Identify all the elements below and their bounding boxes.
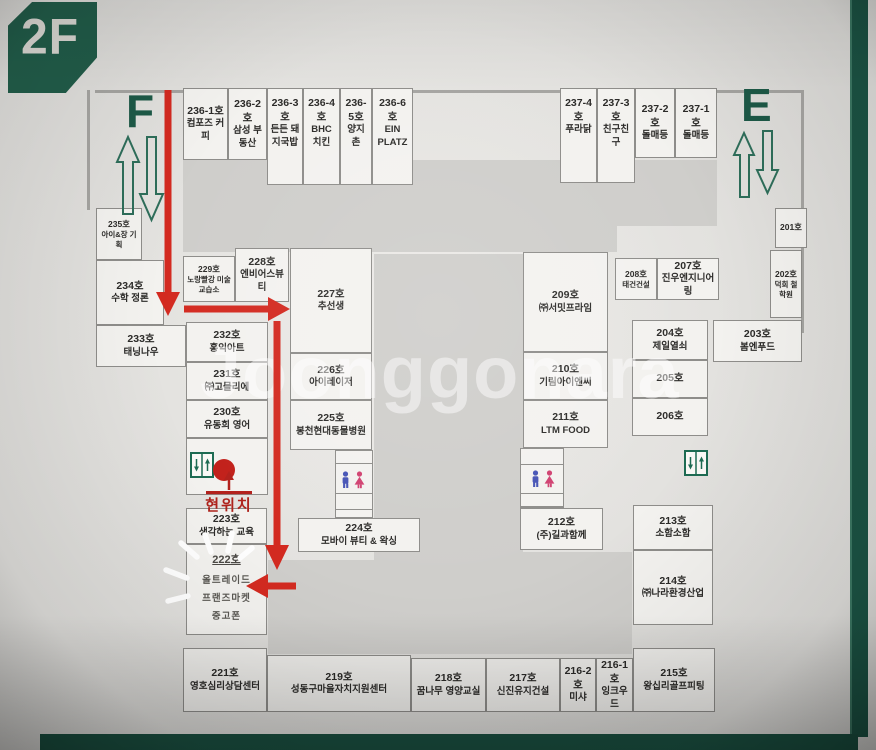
room-number: 233호 (127, 333, 154, 347)
room-name: 홍익아트 (210, 343, 245, 355)
room-number: 236-3호 (270, 97, 300, 124)
room-name: LTM FOOD (541, 425, 590, 437)
room-204호: 204호제일열쇠 (632, 320, 708, 360)
room-number: 202호 (775, 269, 797, 280)
room-219호: 219호성동구마을자치지원센터 (267, 655, 411, 712)
room-name: 양지촌 (343, 124, 369, 149)
room-203호: 203호봄엔푸드 (713, 320, 802, 362)
room-name: 엔비어스뷰티 (238, 269, 286, 294)
room-name: 유동희 영어 (204, 420, 250, 432)
room-number: 237-3호 (600, 97, 632, 124)
room-228호: 228호엔비어스뷰티 (235, 248, 289, 302)
room-number: 215호 (660, 667, 687, 681)
room-211호: 211호LTM FOOD (523, 400, 608, 448)
corridor-tick (521, 464, 563, 465)
room-210호: 210호기림아이엔씨 (523, 352, 608, 400)
room-number: 236-4호 (306, 97, 337, 124)
corridor-tick (521, 493, 563, 494)
room-number: 222호 (212, 553, 240, 567)
sign-frame-bottom (40, 734, 858, 750)
restroom-icon (529, 470, 557, 488)
room-name: 노랑빨강 미술교습소 (186, 275, 232, 295)
room-name: 푸라닭 (565, 124, 591, 136)
room-name: ㈜나라환경산업 (642, 588, 704, 600)
room-214호: 214호㈜나라환경산업 (633, 550, 713, 625)
room-name: 친구친구 (600, 124, 632, 149)
elevator-icon (684, 450, 708, 476)
room-name: 돌매등 (683, 130, 709, 142)
room-236-4호: 236-4호BHC 치킨 (303, 88, 340, 185)
room-number: 214호 (659, 575, 686, 589)
room-number: 236-2호 (231, 98, 264, 125)
room-name: 꿈나무 영양교실 (417, 686, 481, 698)
room-name: 미샤 (569, 692, 586, 704)
room-number: 216-1호 (599, 659, 630, 686)
room-213호: 213호소함소함 (633, 505, 713, 550)
stairwell-f-label: F (126, 88, 154, 134)
room-name: 영호심리상담센터 (190, 681, 260, 693)
room-number: 232호 (213, 329, 240, 343)
room-235호: 235호아이&장 기획 (96, 208, 142, 260)
room-name: 아이&장 기획 (99, 230, 139, 250)
room-227호: 227호추선생 (290, 248, 372, 353)
room-number: 219호 (325, 671, 352, 685)
room-209호: 209호㈜서밋프라임 (523, 252, 608, 352)
room-number: 217호 (509, 672, 536, 686)
corridor-tick (336, 509, 372, 510)
room-221호: 221호영호심리상담센터 (183, 648, 267, 712)
room-number: 207호 (674, 260, 701, 274)
room-number: 235호 (108, 219, 130, 230)
room-name: 추선생 (318, 301, 344, 313)
room-name: ㈜고믈리에 (205, 382, 249, 394)
room-236-2호: 236-2호삼성 부동산 (228, 88, 267, 160)
room-234호: 234호수학 정론 (96, 260, 164, 325)
floor-plan-photo: 236-1호컴포즈 커피236-2호삼성 부동산236-3호든든 돼지국밥236… (0, 0, 876, 750)
room-207호: 207호진우엔지니어링 (657, 258, 719, 300)
room-237-2호: 237-2호돌매등 (635, 88, 675, 158)
room-number: 218호 (435, 672, 462, 686)
corridor-tick (336, 463, 372, 464)
room-name: 봉천현대동물병원 (296, 426, 366, 438)
room-number: 204호 (656, 327, 683, 341)
room-number: 208호 (625, 269, 647, 280)
room-number: 203호 (744, 328, 771, 342)
room-name: 잉크우드 (599, 686, 630, 711)
room-206호: 206호 (632, 398, 708, 436)
room-236-1호: 236-1호컴포즈 커피 (183, 88, 228, 160)
room-number: 237-1호 (678, 103, 714, 130)
room-number: 230호 (213, 406, 240, 420)
room-216-2호: 216-2호미샤 (560, 658, 596, 712)
room-number: 216-2호 (563, 665, 593, 692)
room-number: 237-4호 (563, 97, 594, 124)
room-229호: 229호노랑빨강 미술교습소 (183, 256, 235, 302)
room-216-1호: 216-1호잉크우드 (596, 658, 633, 712)
room-number: 228호 (248, 256, 275, 270)
room-number: 211호 (552, 411, 579, 425)
room-number: 209호 (552, 289, 579, 303)
room-number: 224호 (345, 522, 372, 536)
room-name: 제일열쇠 (653, 341, 688, 353)
room-number: 227호 (317, 288, 344, 302)
room-number: 234호 (116, 280, 143, 294)
room-name: 삼성 부동산 (231, 125, 264, 150)
room-name: 모바이 뷰티 & 왁싱 (321, 536, 397, 548)
room-233호: 233호태닝나우 (96, 325, 186, 367)
room-236-6호: 236-6호EIN PLATZ (372, 88, 413, 185)
room-number: 231호 (213, 368, 240, 382)
room-number: 213호 (659, 515, 686, 529)
current-location-label: 현위치 (191, 494, 267, 515)
room-226호: 226호아이레이저 (290, 353, 372, 400)
room-name: 진우엔지니어링 (660, 273, 716, 298)
room-name: 든든 돼지국밥 (270, 124, 300, 149)
room-208호: 208호태건건설 (615, 258, 657, 300)
room-224호: 224호모바이 뷰티 & 왁싱 (298, 518, 420, 552)
room-202호: 202호덕희 철학원 (770, 250, 802, 318)
room-name: 기림아이엔씨 (539, 377, 591, 389)
room-name: (주)길과함께 (536, 530, 586, 542)
room-name: 태닝나우 (124, 347, 159, 359)
room-218호: 218호꿈나무 영양교실 (411, 658, 486, 712)
room-name: 올트레이드 프랜즈마켓 중고폰 (202, 572, 251, 626)
room-name: 왕십리골프피팅 (643, 681, 704, 693)
room-number: 226호 (317, 364, 344, 378)
room-name: 컴포즈 커피 (186, 118, 225, 143)
room-name: 태건건설 (622, 280, 650, 290)
room-215호: 215호왕십리골프피팅 (633, 648, 715, 712)
sign-frame-right (850, 0, 868, 737)
room-name: 생각하는 교육 (199, 527, 254, 539)
room-name: EIN PLATZ (375, 124, 410, 149)
room-number: 236-5호 (343, 97, 369, 124)
room-236-3호: 236-3호든든 돼지국밥 (267, 88, 303, 185)
room-237-1호: 237-1호돌매등 (675, 88, 717, 158)
room-232호: 232호홍익아트 (186, 322, 268, 362)
floor-label: 2F (21, 9, 79, 66)
room-number: 201호 (780, 222, 802, 233)
room-205호: 205호 (632, 360, 708, 398)
room-name: 소함소함 (656, 528, 691, 540)
room-number: 206호 (656, 410, 683, 424)
room-number: 236-1호 (187, 105, 224, 119)
room-222호: 222호올트레이드 프랜즈마켓 중고폰 (186, 544, 267, 635)
room-number: 236-6호 (375, 97, 410, 124)
elevator-icon (190, 452, 214, 478)
room-name: ㈜서밋프라임 (539, 303, 592, 315)
room-237-4호: 237-4호푸라닭 (560, 88, 597, 183)
restroom-icon (339, 471, 367, 489)
room-number: 212호 (548, 516, 575, 530)
room-230호: 230호유동희 영어 (186, 400, 268, 438)
stairwell-e-label: E (741, 82, 772, 128)
room-number: 210호 (552, 363, 579, 377)
room-number: 237-2호 (638, 103, 672, 130)
room-225호: 225호봉천현대동물병원 (290, 400, 372, 450)
room-name: 아이레이저 (309, 377, 353, 389)
room-name: 수학 정론 (111, 293, 149, 305)
room-231호: 231호㈜고믈리에 (186, 362, 268, 400)
room-number: 225호 (317, 412, 344, 426)
room-237-3호: 237-3호친구친구 (597, 88, 635, 183)
room-212호: 212호(주)길과함께 (520, 508, 603, 550)
room-number: 205호 (656, 372, 683, 386)
room-name: 돌매등 (642, 130, 668, 142)
corridor-tick (521, 506, 563, 507)
room-number: 221호 (211, 667, 238, 681)
room-201호: 201호 (775, 208, 807, 248)
room-236-5호: 236-5호양지촌 (340, 88, 372, 185)
room-name: BHC 치킨 (306, 124, 337, 149)
room-name: 성동구마을자치지원센터 (291, 684, 387, 696)
room-number: 223호 (213, 513, 240, 527)
room-number: 229호 (198, 264, 220, 275)
room-name: 봄엔푸드 (740, 342, 775, 354)
room-name: 덕희 철학원 (773, 280, 799, 300)
room-name: 신진유지건설 (497, 686, 549, 698)
corridor-tick (336, 493, 372, 494)
room-217호: 217호신진유지건설 (486, 658, 560, 712)
